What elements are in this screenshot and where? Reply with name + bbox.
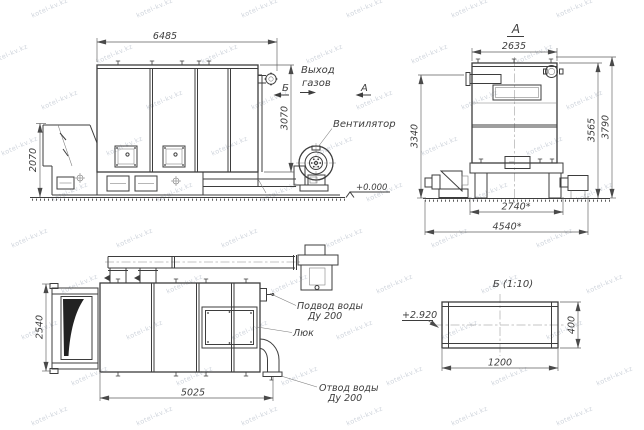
label-water-drain: Отвод воды Ду 200 [281,376,379,404]
section-b-label: Б [282,83,289,94]
front-view-title-text: А [511,22,520,36]
dim-text-4540: 4540* [493,222,522,233]
drive-right [560,176,588,199]
view-title-a: А [507,22,524,37]
dim-text-5025: 5025 [181,388,205,399]
dimension-3340: 3340 [410,75,465,198]
fan-text: Вентилятор [333,119,396,130]
opening-shade [63,299,84,356]
dim-text-2070: 2070 [28,148,39,172]
dimension-5025: 5025 [100,373,273,401]
level-mark-zero: +0.000 [346,183,390,198]
section-mark-b: Б [274,83,290,98]
fuel-feeder [43,125,97,195]
detail-section [434,294,566,356]
dim-text-3790: 3790 [601,115,612,139]
water-supply-text-2: Ду 200 [307,311,342,322]
fan-plan [298,245,338,290]
centre-mark [171,176,181,186]
dimension-3070: 3070 [260,65,294,172]
plan-body [100,279,260,376]
feeder-drive-left [425,171,468,198]
gas-outlet-flange-front [544,66,564,78]
hatch-text: Люк [292,328,314,339]
dim-text-2740: 2740* [502,202,531,213]
flow-arrow-icon [104,275,110,281]
dim-text-400: 400 [567,316,578,334]
furnace-door-left [115,146,137,167]
gas-outlet-flange [258,73,278,86]
front-window-frame [50,284,98,374]
water-drain-elbow [260,339,282,380]
water-supply-stub-plan [260,289,274,302]
water-drain-text-2: Ду 200 [327,393,362,404]
label-water-supply: Подвод воды Ду 200 [270,294,364,323]
top-duct-pipe [104,255,300,283]
ground-line [30,198,345,200]
drawing-sheet: kotel-kv.kz kotel-kv.kz kotel-kv.kz kote… [0,0,644,430]
level-2920-text: +2.920 [402,310,437,321]
gas-outlet-label: Выход газов [300,65,335,95]
base-frame-front [470,157,563,199]
furnace-door-right [163,146,185,167]
dim-text-3340: 3340 [410,124,421,148]
section-a-label: А [360,83,368,94]
label-hatch: Люк [257,327,314,339]
gas-outlet-text-1: Выход [301,65,335,76]
dim-text-3070: 3070 [280,106,291,130]
dim-text-2540: 2540 [35,315,46,339]
gas-outlet-text-2: газов [302,78,331,89]
water-supply-stub [466,73,501,86]
fan [294,143,336,191]
level-zero-text: +0.000 [356,183,387,193]
boiler-body [97,61,278,172]
dimension-2540: 2540 [35,284,52,371]
view-plan: 2540 5025 Подвод воды Ду 200 Люк Отвод в… [35,245,379,404]
view-side-elevation: 6485 3070 2070 Б Выход газов [28,31,396,200]
fan-label: Вентилятор [318,119,396,147]
view-detail-b: Б (1:10) +2.920 400 [402,279,581,371]
gas-flow-arrow-icon [309,90,317,95]
hatch-lyuk [202,307,257,348]
detail-title-text: Б (1:10) [493,279,533,290]
level-mark-2920: +2.920 [402,310,439,328]
dim-text-1200: 1200 [488,358,512,369]
plan-bolts [116,279,248,376]
flow-arrow-icon [134,275,140,281]
dim-text-6485: 6485 [153,31,177,42]
technical-drawing: 6485 3070 2070 Б Выход газов [0,0,644,430]
view-front-a: А [410,22,617,235]
centre-mark [75,173,85,183]
section-mark-a: А [356,83,372,98]
ground-line [423,199,610,201]
dim-text-3565: 3565 [587,118,598,142]
dim-text-2635: 2635 [502,41,526,52]
